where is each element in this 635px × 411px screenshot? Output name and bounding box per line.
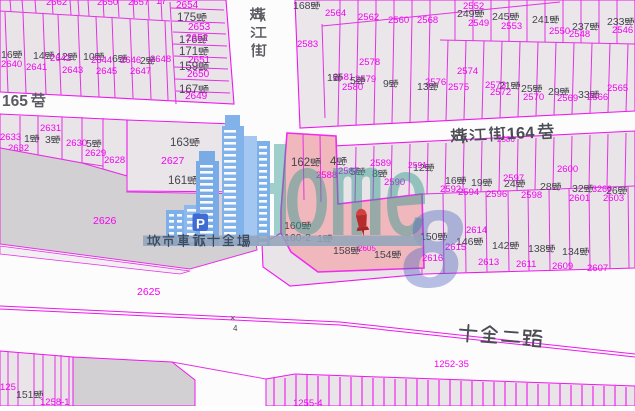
svg-text:158: 158 <box>333 245 351 257</box>
svg-text:1255-4: 1255-4 <box>293 398 323 406</box>
svg-text:2596: 2596 <box>486 189 507 200</box>
svg-text:17: 17 <box>156 0 167 7</box>
svg-text:1: 1 <box>327 72 333 84</box>
svg-text:2591: 2591 <box>408 160 427 170</box>
svg-text:125: 125 <box>0 382 16 393</box>
svg-text:2653: 2653 <box>188 22 211 33</box>
svg-text:2652: 2652 <box>186 33 209 44</box>
svg-text:2643: 2643 <box>62 65 83 76</box>
svg-text:2631: 2631 <box>40 123 61 134</box>
svg-text:2650: 2650 <box>97 0 118 8</box>
svg-text:2630: 2630 <box>66 138 87 149</box>
svg-text:2570: 2570 <box>523 92 544 103</box>
svg-text:2614: 2614 <box>466 225 487 236</box>
svg-text:2609: 2609 <box>552 261 573 272</box>
svg-text:2645: 2645 <box>96 66 117 77</box>
svg-text:2553: 2553 <box>501 21 522 32</box>
svg-text:2560: 2560 <box>388 15 409 26</box>
svg-text:241: 241 <box>532 14 550 26</box>
svg-text:138: 138 <box>528 243 546 255</box>
svg-text:142: 142 <box>492 240 510 252</box>
svg-text:4: 4 <box>330 156 337 168</box>
svg-text:2644: 2644 <box>91 55 112 66</box>
svg-text:1258-1: 1258-1 <box>40 397 70 406</box>
svg-text:237: 237 <box>572 21 590 33</box>
svg-text:2569: 2569 <box>557 93 578 104</box>
svg-text:151: 151 <box>16 389 34 401</box>
svg-text:168: 168 <box>293 0 311 12</box>
svg-text:161: 161 <box>168 175 187 187</box>
svg-text:2662: 2662 <box>46 0 67 8</box>
svg-text:P: P <box>196 217 205 232</box>
svg-text:2589: 2589 <box>370 158 391 169</box>
svg-text:1252-35: 1252-35 <box>434 359 469 370</box>
svg-text:2611: 2611 <box>516 259 536 270</box>
svg-text:2627: 2627 <box>161 155 185 167</box>
svg-text:164: 164 <box>506 124 535 143</box>
svg-text:8: 8 <box>402 188 464 311</box>
svg-text:2583: 2583 <box>297 39 318 50</box>
svg-text:154: 154 <box>374 249 392 261</box>
svg-text:2626: 2626 <box>93 215 117 227</box>
svg-text:2649: 2649 <box>185 91 208 102</box>
svg-text:2629: 2629 <box>85 148 106 159</box>
svg-text:13: 13 <box>417 81 429 93</box>
svg-text:233: 233 <box>607 16 625 28</box>
svg-text:2550: 2550 <box>549 26 570 37</box>
svg-text:2654: 2654 <box>176 0 199 11</box>
svg-text:2597: 2597 <box>503 173 524 184</box>
svg-text:3260: 3260 <box>592 184 612 194</box>
svg-text:9: 9 <box>383 78 389 90</box>
svg-text:2578: 2578 <box>359 57 380 68</box>
svg-text:2633: 2633 <box>0 132 21 143</box>
svg-text:2603: 2603 <box>603 193 624 204</box>
svg-text:2613: 2613 <box>478 257 499 268</box>
svg-text:2600: 2600 <box>557 164 578 175</box>
svg-text:2568: 2568 <box>417 15 438 26</box>
svg-text:3: 3 <box>45 134 51 146</box>
svg-text:2646: 2646 <box>120 55 141 66</box>
svg-text:14: 14 <box>33 50 45 62</box>
svg-text:2572: 2572 <box>490 87 511 98</box>
svg-text:2648: 2648 <box>150 54 171 65</box>
svg-text:2641: 2641 <box>26 62 47 73</box>
svg-text:2565: 2565 <box>607 83 628 94</box>
svg-text:×: × <box>230 313 235 323</box>
svg-text:2628: 2628 <box>104 155 125 166</box>
svg-text:2575: 2575 <box>448 82 469 93</box>
svg-text:2601: 2601 <box>569 193 590 204</box>
svg-text:2564: 2564 <box>325 8 346 19</box>
svg-text:2549: 2549 <box>468 18 489 29</box>
svg-text:2640: 2640 <box>1 59 22 70</box>
svg-text:2562: 2562 <box>358 12 379 23</box>
svg-text:2566: 2566 <box>587 92 608 103</box>
svg-text:2598: 2598 <box>521 190 542 201</box>
svg-text:6: 6 <box>112 53 118 65</box>
svg-text:163: 163 <box>170 137 189 149</box>
svg-text:165: 165 <box>2 93 28 110</box>
svg-text:2580: 2580 <box>342 82 363 93</box>
svg-text:2650: 2650 <box>187 69 210 80</box>
svg-text:2647: 2647 <box>130 66 151 77</box>
svg-text:2574: 2574 <box>457 66 478 77</box>
svg-text:2642: 2642 <box>50 53 71 64</box>
svg-text:4: 4 <box>233 324 238 333</box>
svg-text:2625: 2625 <box>137 286 161 298</box>
svg-text:162: 162 <box>291 157 310 169</box>
svg-text:134: 134 <box>562 246 580 258</box>
svg-text:2657: 2657 <box>128 0 149 8</box>
svg-text:2607: 2607 <box>587 263 608 274</box>
